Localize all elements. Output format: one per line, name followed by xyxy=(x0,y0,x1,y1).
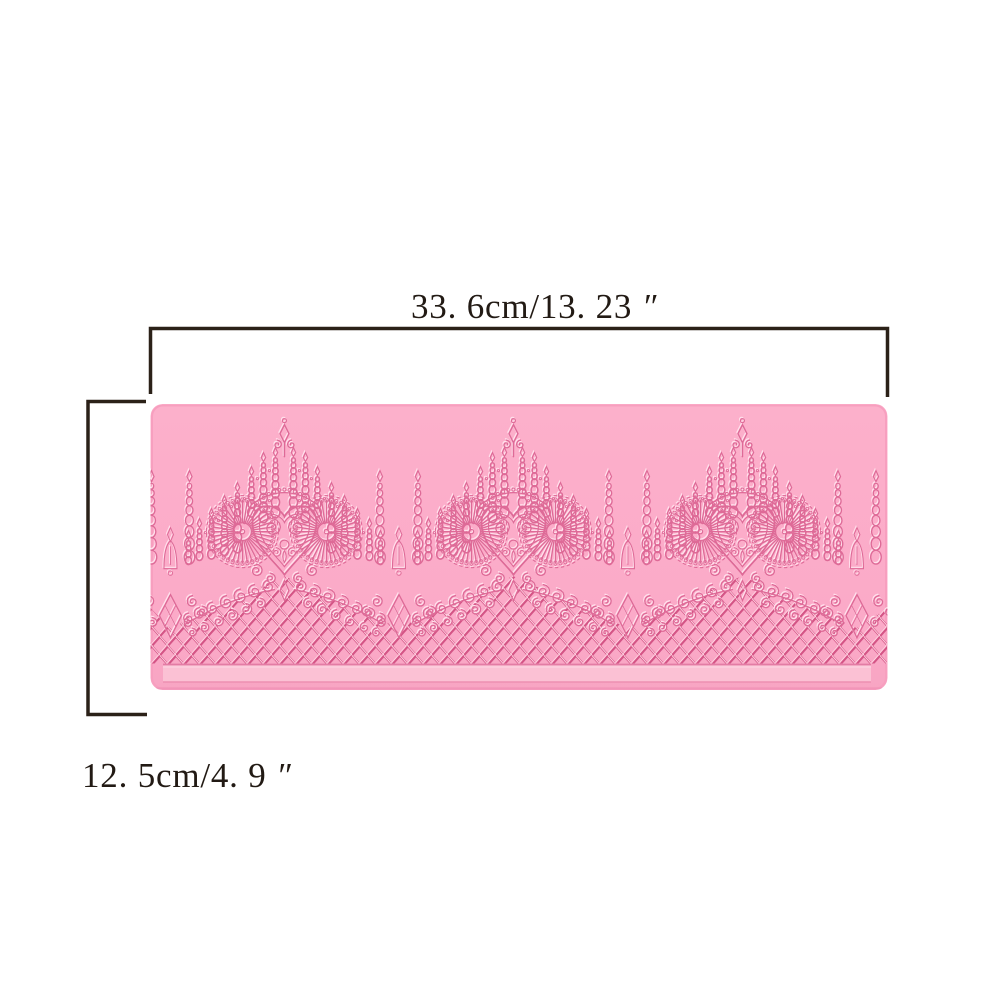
svg-text:33. 6cm/13. 23 ″: 33. 6cm/13. 23 ″ xyxy=(411,287,657,326)
svg-text:12. 5cm/4. 9 ″: 12. 5cm/4. 9 ″ xyxy=(82,756,292,795)
